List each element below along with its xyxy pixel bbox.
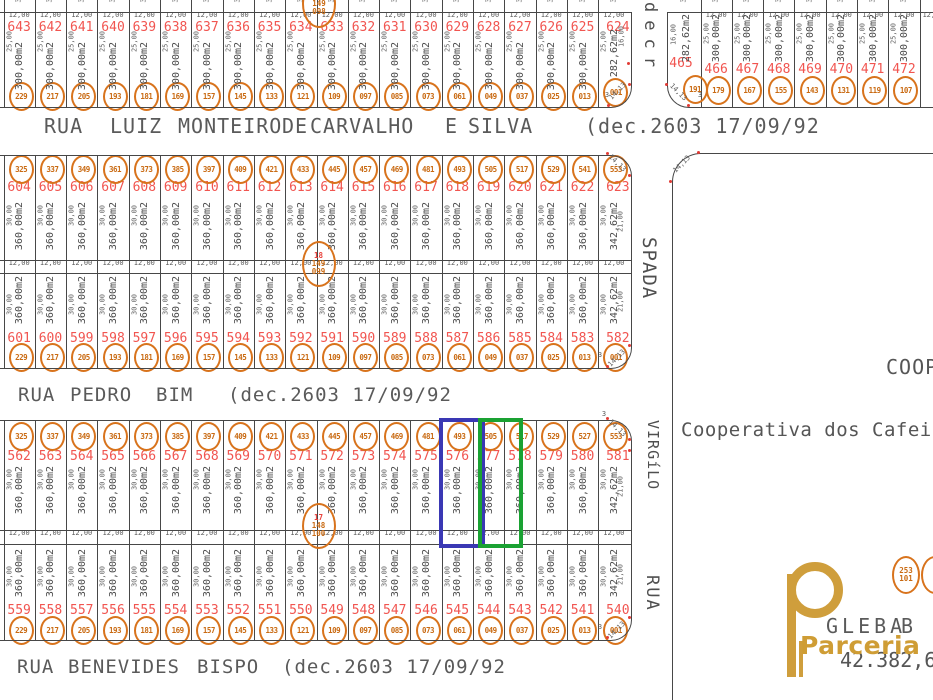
junction-tick <box>598 530 599 544</box>
lot-width-dim: 12,00 <box>192 12 222 19</box>
survey-point-dot <box>628 449 631 452</box>
vertical-street-rua: RUA <box>643 575 660 612</box>
lot-area: 300,00m2 <box>172 31 182 101</box>
lot-depth-dim: 30,00 <box>569 562 576 592</box>
street-name-word: RUA <box>44 116 83 136</box>
street-name-word: RUA <box>17 658 54 677</box>
lot-depth-dim: 25,00 <box>860 19 867 49</box>
cut-lot-boundary-stub <box>732 0 733 12</box>
lot-depth-dim: 30,00 <box>100 201 107 231</box>
lot-depth-dim: 25,00 <box>100 27 107 57</box>
lot-area: 360,00m2 <box>46 191 56 261</box>
lot-tag-circle: 527 <box>572 422 597 451</box>
lot-depth-dim: 25,00 <box>703 19 710 49</box>
survey-point-label: 3 <box>696 92 704 99</box>
lot-tag-circle: 119 <box>862 76 887 105</box>
lot-area: 360,00m2 <box>516 265 526 335</box>
street-name-word: CARVALHO <box>310 116 414 136</box>
cut-lot-boundary-stub <box>35 0 36 12</box>
lot-depth-dim: 30,00 <box>319 290 326 320</box>
lot-depth-dim: 30,00 <box>288 562 295 592</box>
junction-tick <box>97 530 98 544</box>
lot-width-dim: 12,00 <box>35 12 65 19</box>
lot-boundary-line <box>536 544 537 641</box>
lot-depth-dim: 30,00 <box>288 465 295 495</box>
survey-point-label: 3 <box>596 624 604 631</box>
lot-boundary-line <box>129 273 130 368</box>
lot-depth-dim: 30,00 <box>507 562 514 592</box>
cut-lot-area-fragment: 3 <box>548 0 555 7</box>
lot-area: 360,00m2 <box>234 191 244 261</box>
cut-lot-boundary-stub <box>536 0 537 12</box>
vertical-street-spada: SPADA <box>639 237 658 299</box>
lot-depth-dim: 30,00 <box>601 201 608 231</box>
survey-marker-number: 098 <box>312 8 326 16</box>
lot-depth-dim: 30,00 <box>225 465 232 495</box>
lot-tag-circle: 155 <box>768 76 793 105</box>
lot-tag-circle: 373 <box>134 155 159 184</box>
lot-area: 300,00m2 <box>203 31 213 101</box>
lot-depth-dim: 30,00 <box>507 290 514 320</box>
lot-depth-dim: 30,00 <box>350 465 357 495</box>
highlight-lot-577-green[interactable] <box>478 418 523 548</box>
lot-depth-dim: 30,00 <box>163 465 170 495</box>
survey-point-label: 3 <box>603 92 611 99</box>
end-lot-depth-dim: 16,00 <box>619 22 626 52</box>
lot-depth-dim: 30,00 <box>225 201 232 231</box>
junction-tick <box>223 530 224 544</box>
lot-area: 360,00m2 <box>234 455 244 525</box>
lot-width-dim: 12,00 <box>348 12 378 19</box>
lot-boundary-line <box>35 544 36 641</box>
lot-depth-dim: 30,00 <box>194 465 201 495</box>
lot-depth-dim: 30,00 <box>444 290 451 320</box>
lot-depth-dim: 30,00 <box>569 290 576 320</box>
lot-depth-dim: 30,00 <box>163 201 170 231</box>
cut-lot-boundary-stub <box>442 0 443 12</box>
lot-tag-circle: 179 <box>706 76 731 105</box>
lot-boundary-line <box>66 544 67 641</box>
lot-boundary-line <box>97 544 98 641</box>
lot-area: 300,00m2 <box>579 31 589 101</box>
lot-area: 360,00m2 <box>391 191 401 261</box>
lot-tag-circle: 385 <box>165 422 190 451</box>
block-right-edge <box>631 12 632 87</box>
lot-tag-circle: 325 <box>9 422 34 451</box>
lot-area: 300,00m2 <box>15 31 25 101</box>
junction-tick <box>97 260 98 274</box>
lot-boundary-line <box>254 544 255 641</box>
survey-point-dot <box>669 180 672 183</box>
lot-depth-dim: 30,00 <box>538 465 545 495</box>
lot-boundary-line <box>536 155 537 260</box>
survey-point-dot <box>606 365 609 368</box>
junction-tick <box>254 530 255 544</box>
cut-lot-boundary-stub <box>473 0 474 12</box>
lot-area: 360,00m2 <box>172 455 182 525</box>
lot-area: 360,00m2 <box>266 538 276 608</box>
lot-area: 360,00m2 <box>516 538 526 608</box>
lot-width-dim: 12,00 <box>4 530 34 537</box>
junction-tick <box>379 260 380 274</box>
street-name-word: BENEVIDES <box>68 658 180 677</box>
lot-depth-dim: 30,00 <box>319 562 326 592</box>
lot-area: 360,00m2 <box>234 265 244 335</box>
junction-tick <box>598 260 599 274</box>
block-front-line <box>689 107 933 108</box>
cut-lot-area-fragment: 3 <box>16 0 23 7</box>
lot-boundary-line <box>4 420 5 530</box>
lot-boundary-line <box>285 544 286 641</box>
lot-area: 300,00m2 <box>109 31 119 101</box>
lot-area: 360,00m2 <box>453 538 463 608</box>
lot-boundary-line <box>223 420 224 530</box>
lot-depth-dim: 30,00 <box>69 562 76 592</box>
block-edge-line <box>667 12 933 13</box>
lot-area: 360,00m2 <box>15 265 25 335</box>
block-edge-line <box>0 368 610 369</box>
cut-lot-boundary-stub <box>826 0 827 12</box>
lot-area: 360,00m2 <box>391 538 401 608</box>
lot-depth-dim: 30,00 <box>382 290 389 320</box>
lot-width-dim: 12,00 <box>67 530 97 537</box>
cut-lot-area-fragment: 3 <box>423 0 430 7</box>
survey-point-label: 3 <box>596 352 604 359</box>
lot-width-dim: 12,00 <box>505 12 535 19</box>
cut-lot-boundary-stub <box>794 0 795 12</box>
lot-tag-circle: 445 <box>322 422 347 451</box>
lot-depth-dim: 30,00 <box>538 201 545 231</box>
lot-area: 300,00m2 <box>234 31 244 101</box>
junction-tick <box>348 260 349 274</box>
logo-stem <box>787 574 796 677</box>
end-lot-depth-dim: 21,00 <box>617 472 624 502</box>
junction-tick <box>567 260 568 274</box>
survey-marker: 17148100 <box>302 503 336 549</box>
lot-area: 360,00m2 <box>109 191 119 261</box>
lot-boundary-line <box>410 544 411 641</box>
lot-area: 360,00m2 <box>422 538 432 608</box>
lot-depth-dim: 30,00 <box>256 201 263 231</box>
lot-area: 360,00m2 <box>547 455 557 525</box>
lot-area: 360,00m2 <box>359 191 369 261</box>
junction-tick <box>129 530 130 544</box>
lot-area: 360,00m2 <box>422 265 432 335</box>
lot-boundary-line <box>317 273 318 368</box>
lot-depth-dim: 30,00 <box>256 562 263 592</box>
lot-width-dim: 12,00 <box>536 530 566 537</box>
lot-depth-dim: 25,00 <box>69 27 76 57</box>
lot-depth-dim: 25,00 <box>288 27 295 57</box>
lot-tag-circle: 541 <box>572 155 597 184</box>
lot-width-dim: 12,00 <box>795 12 825 19</box>
lot-depth-dim: 30,00 <box>37 465 44 495</box>
cut-lot-area-fragment: 3 <box>78 0 85 7</box>
cut-lot-area-fragment: 3 <box>516 0 523 7</box>
lot-width-dim: 12,00 <box>568 530 598 537</box>
lot-width-dim: 12,00 <box>129 530 159 537</box>
lot-depth-dim: 30,00 <box>601 465 608 495</box>
lot-area: 360,00m2 <box>203 191 213 261</box>
lot-width-dim: 12,00 <box>161 530 191 537</box>
lot-depth-dim: 30,00 <box>194 562 201 592</box>
lot-area: 360,00m2 <box>266 265 276 335</box>
lot-boundary-line <box>191 544 192 641</box>
lot-area: 360,00m2 <box>234 538 244 608</box>
lot-depth-dim: 25,00 <box>734 19 741 49</box>
lot-boundary-line <box>129 544 130 641</box>
lot-area: 360,00m2 <box>391 265 401 335</box>
lot-boundary-line <box>285 273 286 368</box>
lot-boundary-line <box>348 544 349 641</box>
lot-boundary-line <box>920 12 921 107</box>
lot-area: 300,00m2 <box>391 31 401 101</box>
lot-width-dim: 12,00 <box>255 530 285 537</box>
lot-width-dim: 12,00 <box>599 12 629 19</box>
lot-area: 360,00m2 <box>109 265 119 335</box>
lot-depth-dim: 25,00 <box>256 27 263 57</box>
lot-depth-dim: 30,00 <box>538 290 545 320</box>
lot-tag-circle: 433 <box>290 422 315 451</box>
lot-area: 360,00m2 <box>328 538 338 608</box>
survey-point-dot <box>606 417 609 420</box>
lot-area: 360,00m2 <box>15 455 25 525</box>
lot-depth-dim: 30,00 <box>100 465 107 495</box>
lot-boundary-line <box>223 155 224 260</box>
lot-area: 360,00m2 <box>46 265 56 335</box>
lot-tag-circle: 457 <box>353 422 378 451</box>
lot-area: 360,00m2 <box>297 538 307 608</box>
survey-point-dot <box>665 83 668 86</box>
lot-depth-dim: 30,00 <box>6 562 13 592</box>
lot-area: 360,00m2 <box>579 265 589 335</box>
lot-area: 360,00m2 <box>203 455 213 525</box>
cut-lot-boundary-stub <box>223 0 224 12</box>
junction-tick <box>160 260 161 274</box>
lot-tag-circle: 469 <box>384 422 409 451</box>
lot-tag-circle: 409 <box>228 422 253 451</box>
lot-boundary-line <box>536 420 537 530</box>
cut-lot-area-fragment: 3 <box>775 0 782 7</box>
cut-lot-boundary-stub <box>888 0 889 12</box>
lot-area: 360,00m2 <box>547 191 557 261</box>
lot-depth-dim: 30,00 <box>382 465 389 495</box>
cut-lot-boundary-stub <box>857 0 858 12</box>
lot-boundary-line <box>379 544 380 641</box>
cut-lot-boundary-stub <box>410 0 411 12</box>
lot-depth-dim: 25,00 <box>828 19 835 49</box>
lot-area: 360,00m2 <box>78 538 88 608</box>
lot-depth-dim: 30,00 <box>69 201 76 231</box>
lot-tag-circle: 385 <box>165 155 190 184</box>
lot-depth-dim: 30,00 <box>476 562 483 592</box>
cut-lot-area-fragment: 3 <box>266 0 273 7</box>
survey-point-dot <box>628 616 631 619</box>
lot-width-dim: 12,00 <box>826 12 856 19</box>
cut-lot-boundary-stub <box>285 0 286 12</box>
lot-tag-circle: 337 <box>40 422 65 451</box>
lot-tag-circle: 167 <box>737 76 762 105</box>
lot-tag-circle: 397 <box>196 155 221 184</box>
lot-width-dim: 12,00 <box>129 12 159 19</box>
lot-depth-dim: 25,00 <box>194 27 201 57</box>
lot-width-dim: 12,00 <box>732 12 762 19</box>
lot-area: 300,00m2 <box>516 31 526 101</box>
lot-area: 360,00m2 <box>391 455 401 525</box>
street-name-word: LUIZ <box>110 116 162 136</box>
lot-boundary-line <box>473 273 474 368</box>
lot-area: 360,00m2 <box>15 538 25 608</box>
lot-depth-dim: 25,00 <box>413 27 420 57</box>
cut-lot-area-fragment: 3 <box>744 0 751 7</box>
street-name-word: PEDRO <box>70 386 132 405</box>
lot-area: 360,00m2 <box>516 191 526 261</box>
lot-area: 360,00m2 <box>547 538 557 608</box>
lot-depth-dim: 30,00 <box>69 465 76 495</box>
lot-area: 360,00m2 <box>78 265 88 335</box>
survey-point-dot <box>628 344 631 347</box>
lot-tag-circle: 373 <box>134 422 159 451</box>
cut-lot-boundary-stub <box>160 0 161 12</box>
lot-tag-circle: 421 <box>259 422 284 451</box>
cut-lot-area-fragment: 3 <box>141 0 148 7</box>
lot-tag-circle: 481 <box>416 155 441 184</box>
end-lot-depth-dim: 21,00 <box>617 207 624 237</box>
lot-area: 360,00m2 <box>266 191 276 261</box>
block-front-line <box>0 107 610 108</box>
lot-area: 360,00m2 <box>485 538 495 608</box>
junction-tick <box>191 530 192 544</box>
cut-lot-area-fragment: 3 <box>807 0 814 7</box>
junction-tick <box>442 260 443 274</box>
lot-tag-circle: 469 <box>384 155 409 184</box>
block-left-edge <box>667 12 668 87</box>
block-edge-line <box>0 640 610 641</box>
lot-width-dim: 12,00 <box>35 530 65 537</box>
lot-tag-circle: 529 <box>541 422 566 451</box>
junction-tick <box>410 530 411 544</box>
coop-label-partial: COOP <box>886 357 933 377</box>
lot-depth-dim: 30,00 <box>100 562 107 592</box>
lot-area: 360,00m2 <box>78 191 88 261</box>
lot-area: 360,00m2 <box>485 265 495 335</box>
plat-drawing-canvas[interactable]: decr SPADA VIRGíLO RUA COOP Cooperativa … <box>0 0 933 700</box>
cut-lot-area-fragment: 3 <box>869 0 876 7</box>
lot-boundary-line <box>442 544 443 641</box>
cut-lot-area-fragment: 3 <box>235 0 242 7</box>
coop-left-edge <box>672 182 673 700</box>
survey-point-dot <box>628 174 631 177</box>
lot-tag-circle: 433 <box>290 155 315 184</box>
lot-depth-dim: 30,00 <box>601 562 608 592</box>
lot-boundary-line <box>567 544 568 641</box>
lot-area: 360,00m2 <box>579 538 589 608</box>
block-right-edge <box>631 441 632 620</box>
lot-area: 360,00m2 <box>579 191 589 261</box>
lot-tag-circle: 529 <box>541 155 566 184</box>
lot-area: 360,00m2 <box>359 538 369 608</box>
lot-width-dim: 12,00 <box>701 12 731 19</box>
lot-area: 360,00m2 <box>78 455 88 525</box>
lot-depth-dim: 30,00 <box>163 562 170 592</box>
survey-point-dot <box>687 104 690 107</box>
lot-depth-dim: 30,00 <box>6 290 13 320</box>
street-name-word: MONTEIRO <box>178 116 282 136</box>
lot-area: 360,00m2 <box>46 455 56 525</box>
parceria-logo: Parceria <box>780 555 933 685</box>
lot-boundary-line <box>35 273 36 368</box>
lot-area: 300,00m2 <box>422 31 432 101</box>
lot-width-dim: 12,00 <box>223 530 253 537</box>
street-name-word: SILVA <box>468 116 533 136</box>
lot-area: 360,00m2 <box>359 455 369 525</box>
lot-boundary-line <box>567 273 568 368</box>
lot-area: 360,00m2 <box>359 265 369 335</box>
vertical-text-decree: decr <box>641 2 658 75</box>
survey-point-dot <box>627 62 630 65</box>
lot-width-dim: 12,00 <box>255 12 285 19</box>
lot-tag-circle: 517 <box>509 155 534 184</box>
lot-width-dim: 12,00 <box>918 12 933 19</box>
junction-tick <box>379 530 380 544</box>
lot-area: 360,00m2 <box>203 538 213 608</box>
cut-lot-boundary-stub <box>763 0 764 12</box>
lot-depth-dim: 25,00 <box>538 27 545 57</box>
lot-depth-dim: 30,00 <box>413 201 420 231</box>
cut-lot-boundary-stub <box>4 0 5 12</box>
cut-lot-area-fragment: 3 <box>454 0 461 7</box>
cut-lot-area-fragment: 3 <box>360 0 367 7</box>
survey-point-dot <box>697 151 700 154</box>
street-name-word: E <box>445 116 458 136</box>
junction-tick <box>160 530 161 544</box>
lot-depth-dim: 30,00 <box>476 290 483 320</box>
lot-tag-circle: 107 <box>893 76 918 105</box>
junction-tick <box>223 260 224 274</box>
lot-area: 360,00m2 <box>422 455 432 525</box>
lot-depth-dim: 30,00 <box>319 465 326 495</box>
cut-lot-area-fragment: 3 <box>579 0 586 7</box>
lot-depth-dim: 30,00 <box>382 201 389 231</box>
lot-width-dim: 12,00 <box>98 12 128 19</box>
lot-depth-dim: 30,00 <box>225 562 232 592</box>
lot-depth-dim: 30,00 <box>37 290 44 320</box>
block-right-edge <box>631 176 632 349</box>
lot-tag-circle: 349 <box>71 155 96 184</box>
street-name-word: BIM <box>156 386 193 405</box>
lot-depth-dim: 25,00 <box>225 27 232 57</box>
lot-depth-dim: 30,00 <box>6 201 13 231</box>
lot-depth-dim: 25,00 <box>797 19 804 49</box>
lot-depth-dim: 25,00 <box>601 27 608 57</box>
lot-depth-dim: 25,00 <box>382 27 389 57</box>
lot-area: 360,00m2 <box>109 455 119 525</box>
lot-depth-dim: 25,00 <box>350 27 357 57</box>
lot-width-dim: 12,00 <box>889 12 919 19</box>
lot-area: 360,00m2 <box>140 191 150 261</box>
lot-area: 300,00m2 <box>140 31 150 101</box>
survey-marker-number: 100 <box>312 530 326 538</box>
lot-area: 360,00m2 <box>15 191 25 261</box>
lot-depth-dim: 30,00 <box>382 562 389 592</box>
lot-boundary-line <box>379 273 380 368</box>
survey-marker: 18149099 <box>302 241 336 287</box>
lot-width-dim: 12,00 <box>411 530 441 537</box>
junction-tick <box>348 530 349 544</box>
cut-lot-area-fragment: 3 <box>47 0 54 7</box>
survey-point-dot <box>607 104 610 107</box>
lot-tag-circle: 409 <box>228 155 253 184</box>
